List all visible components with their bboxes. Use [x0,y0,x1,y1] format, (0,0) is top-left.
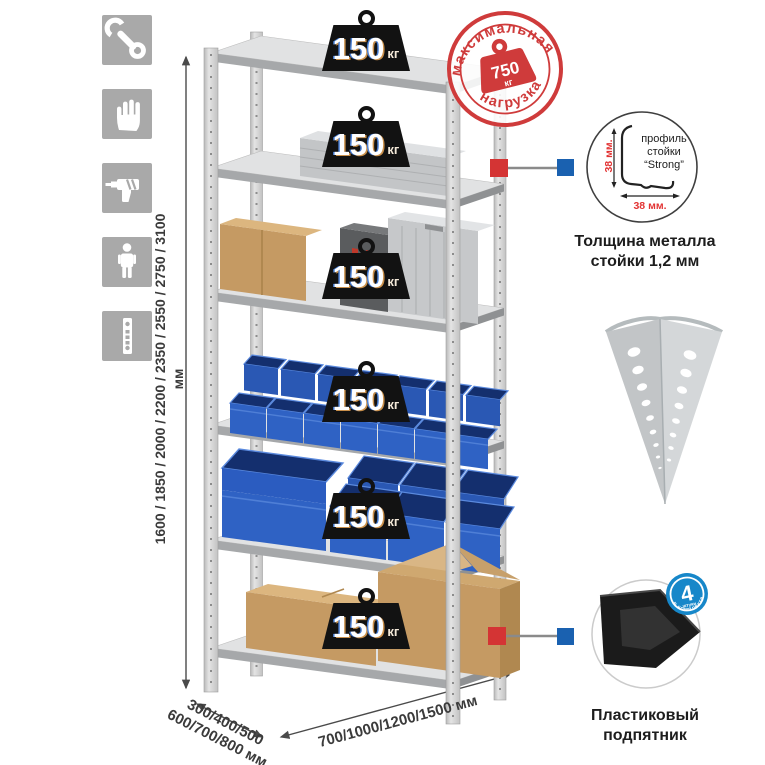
profile-caption-line1: Толщина металла [557,232,733,252]
weight-ring [358,361,375,378]
load-unit: кг [387,515,399,528]
shelf-load-badge-6: 150 кг [322,588,410,649]
profile-label-line3: “Strong” [632,159,696,172]
load-value: 150 [333,384,385,415]
weight-body: 150 кг [322,603,410,649]
weight-ring [358,106,375,123]
profile-caption-line2: стойки 1,2 мм [557,252,733,272]
drill-icon [102,163,152,213]
shelf-load-badge-1: 150 кг [322,10,410,71]
weight-body: 150 кг [322,121,410,167]
weight-body: 150 кг [322,25,410,71]
profile-label-line2: стойки [632,146,696,159]
foot-caption-line2: подпятник [557,726,733,746]
load-unit: кг [387,47,399,60]
marker-red-square [488,627,506,645]
weight-ring [358,588,375,605]
profile-label-line1: профиль [632,133,696,146]
profile-dim-horizontal: 38 мм. [628,200,672,212]
load-value: 150 [333,33,385,64]
load-unit: кг [387,275,399,288]
feature-icon-column [102,15,152,361]
shelf-load-badge-3: 150 кг [322,238,410,299]
weight-body: 150 кг [322,376,410,422]
shelf-load-badge-2: 150 кг [322,106,410,167]
profile-strip-icon [102,311,152,361]
weight-body: 150 кг [322,493,410,539]
profile-label: профиль стойки “Strong” [632,133,696,172]
shelf-load-badge-4: 150 кг [322,361,410,422]
load-value: 150 [333,261,385,292]
height-dimension-label: 1600 / 1850 / 2000 / 2200 / 2350 / 2550 … [151,209,187,549]
foot-caption-line1: Пластиковый [557,706,733,726]
marker-blue-square [557,159,574,176]
profile-caption: Толщина металла стойки 1,2 мм [557,232,733,272]
marker-red-square [490,159,508,177]
load-value: 150 [333,501,385,532]
profile-callout-connector [490,159,574,177]
load-unit: кг [387,398,399,411]
profile-dim-vertical: 38 мм. [603,134,615,178]
weight-body: 150 кг [322,253,410,299]
load-unit: кг [387,143,399,156]
weight-ring [358,478,375,495]
gloves-icon [102,89,152,139]
person-icon [102,237,152,287]
weight-ring [358,10,375,27]
max-load-stamp: максимальная нагрузка 750 кг [443,7,567,131]
infographic-canvas: 4 штуки в комплекте 150 кг 150 кг 150 кг [0,0,765,765]
load-unit: кг [387,625,399,638]
foot-caption: Пластиковый подпятник [557,706,733,746]
marker-blue-square [557,628,574,645]
angle-post-image [606,318,722,504]
foot-callout-connector [488,627,574,645]
load-value: 150 [333,611,385,642]
load-value: 150 [333,129,385,160]
shelf-load-badge-5: 150 кг [322,478,410,539]
wrench-icon [102,15,152,65]
weight-ring [358,238,375,255]
